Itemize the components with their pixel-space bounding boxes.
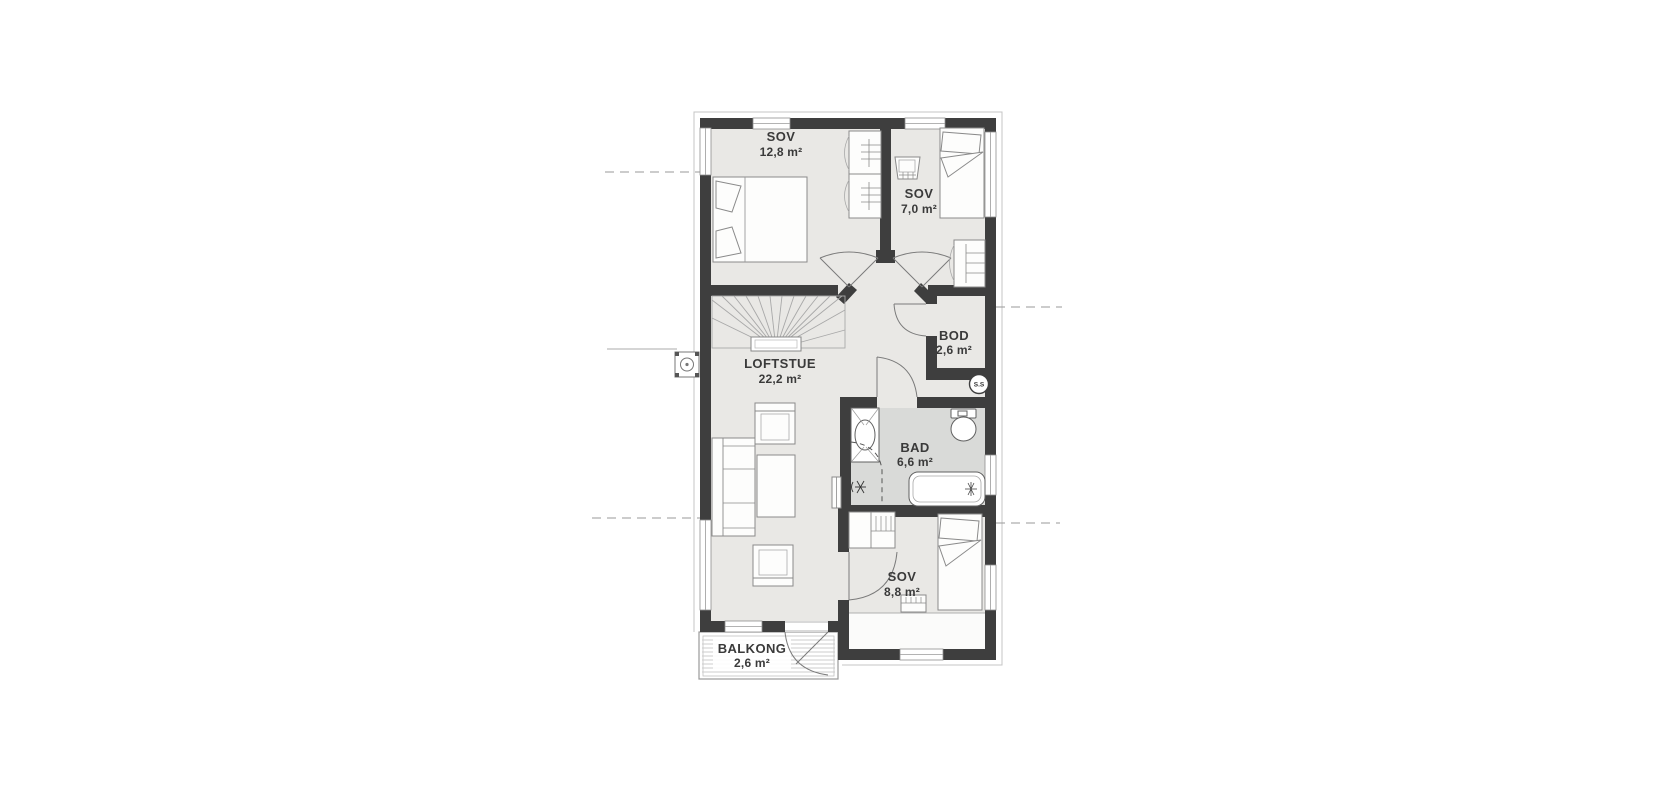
desk-chair (895, 157, 920, 179)
single-bed (940, 128, 984, 218)
room-label-balkong: BALKONG (718, 641, 787, 656)
bathtub-symbol (909, 472, 985, 506)
floor-plan-page: SOV 12,8 m² SOV 7,0 m² BOD 2,6 m² LOFTST… (0, 0, 1670, 800)
sofa (712, 438, 755, 536)
room-area-bad: 6,6 m² (897, 455, 933, 469)
room-area-balkong: 2,6 m² (734, 656, 770, 670)
low-ceiling-strip (849, 613, 985, 649)
wardrobe-symbol (950, 240, 986, 287)
radiator-symbol (832, 477, 841, 508)
coffee-table (757, 455, 795, 517)
chair (753, 545, 793, 586)
room-label-loftstue: LOFTSTUE (744, 356, 816, 371)
room-label-sov-8: SOV (888, 569, 917, 584)
wardrobe-symbol (845, 174, 882, 218)
room-area-loftstue: 22,2 m² (759, 372, 802, 386)
toilet-symbol (951, 409, 976, 441)
double-bed (713, 177, 807, 262)
sink-symbol (851, 408, 879, 462)
armchair (755, 403, 795, 444)
room-area-bod: 2,6 m² (936, 343, 972, 357)
room-area-sov-12: 12,8 m² (760, 145, 803, 159)
wardrobe-symbol (849, 512, 895, 548)
single-bed (938, 514, 982, 610)
floor-plan: SOV 12,8 m² SOV 7,0 m² BOD 2,6 m² LOFTST… (0, 0, 1670, 800)
room-label-sov-7: SOV (905, 186, 934, 201)
room-area-sov-7: 7,0 m² (901, 202, 937, 216)
chimney-symbol (675, 352, 699, 377)
room-area-sov-8: 8,8 m² (884, 585, 920, 599)
shaft-badge-label: S.S (974, 382, 985, 389)
shaft-badge: S.S (970, 375, 989, 394)
room-label-bod: BOD (939, 328, 969, 343)
room-label-sov-12: SOV (767, 129, 796, 144)
room-label-bad: BAD (900, 440, 929, 455)
wardrobe-symbol (845, 131, 882, 174)
